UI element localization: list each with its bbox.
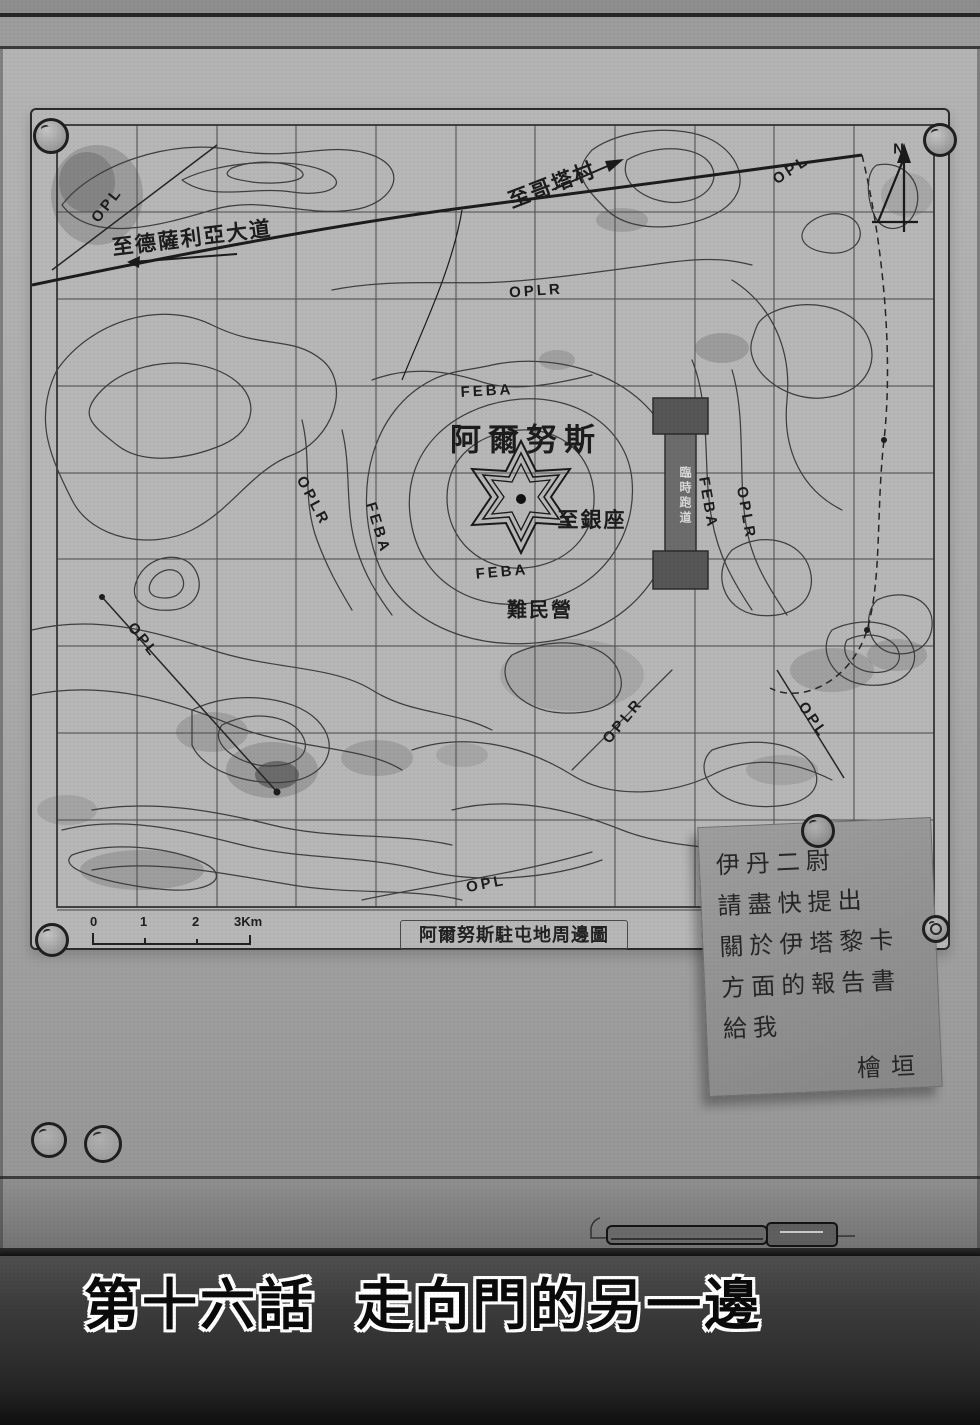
wall-band-top <box>0 0 980 13</box>
note-text: 伊丹二尉 請盡快提出 關於伊塔黎卡 方面的報告書 給我 檜垣 <box>698 818 941 1090</box>
alnus-label: 阿爾努斯 <box>450 415 602 460</box>
chapter-title: 第十六話 走向門的另一邊 <box>84 1260 762 1340</box>
board-magnet-1 <box>31 1122 67 1158</box>
scale-tick-2: 2 <box>192 914 199 929</box>
wall-band-2 <box>0 17 980 46</box>
scale-bar: 0 1 2 3Km <box>88 914 263 948</box>
scale-tick-0: 0 <box>90 914 97 929</box>
note-signature: 檜垣 <box>724 1045 941 1089</box>
refugee-camp-label: 難民營 <box>507 594 573 623</box>
map-caption: 阿爾努斯駐屯地周邊圖 <box>400 920 628 950</box>
note-line: 給我 <box>722 1000 940 1050</box>
magnet-pin-top-right <box>923 123 957 157</box>
note-pin <box>801 814 835 848</box>
magnet-pin-top-left <box>33 118 69 154</box>
board-left-edge <box>0 49 3 1253</box>
magnet-pin-bottom-left <box>35 923 69 957</box>
magnet-pin-bottom-right <box>922 915 950 943</box>
marker-pen <box>555 1208 955 1256</box>
scale-tick-1: 1 <box>140 914 147 929</box>
scale-bracket <box>88 932 263 947</box>
feba-label-top: FEBA <box>460 381 514 401</box>
sticky-note: 伊丹二尉 請盡快提出 關於伊塔黎卡 方面的報告書 給我 檜垣 <box>697 817 943 1097</box>
scale-tick-3: 3Km <box>234 914 262 929</box>
manga-page: 至德薩利亞大道 至哥塔村 OPL OPL OPLR FEBA 阿爾努斯 至銀座 … <box>0 0 980 1425</box>
runway-label: 臨時跑道 <box>663 438 694 554</box>
ginza-label: 至銀座 <box>558 504 627 534</box>
board-magnet-2 <box>84 1125 122 1163</box>
north-label: N <box>893 141 907 158</box>
